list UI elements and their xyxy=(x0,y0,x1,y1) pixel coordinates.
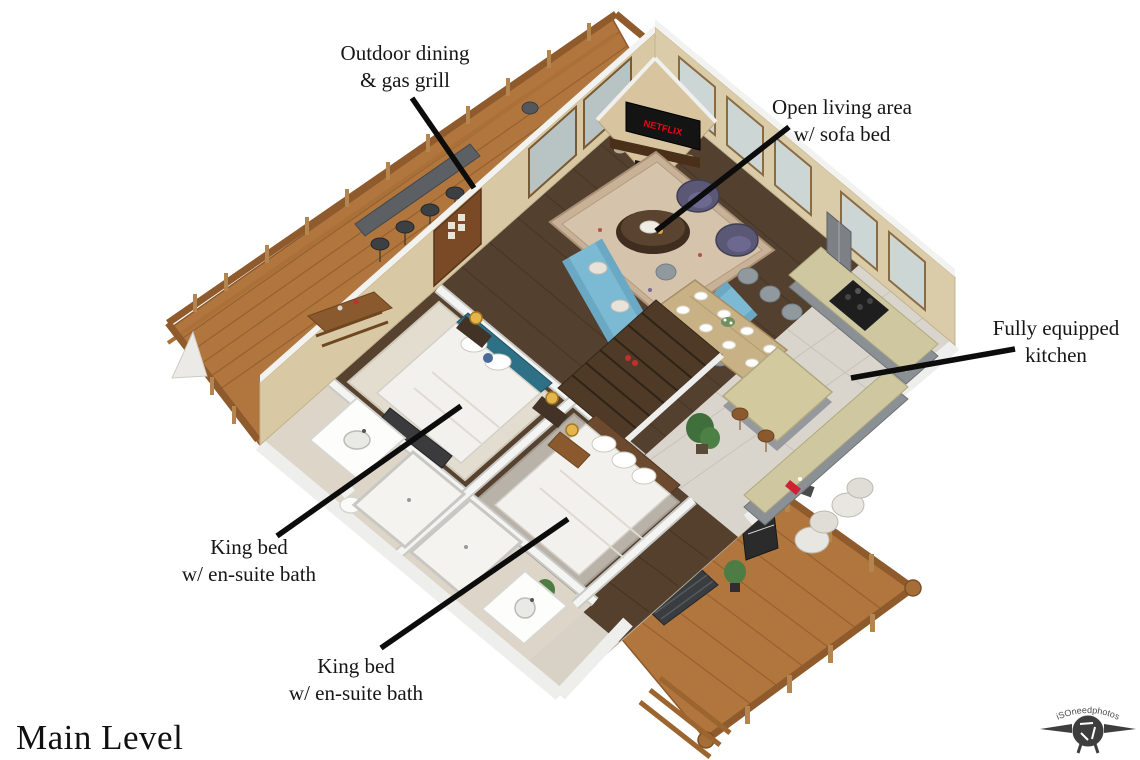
lamp xyxy=(546,392,558,404)
annotation-king-bed-2: King bed w/ en-suite bath xyxy=(246,653,466,707)
annotation-line: Fully equipped xyxy=(956,315,1140,342)
watermark-logo: iSOneedphotos xyxy=(1040,705,1136,753)
annotation-king-bed-1: King bed w/ en-suite bath xyxy=(139,534,359,588)
annotation-line: w/ en-suite bath xyxy=(246,680,466,707)
wing-left-icon xyxy=(1040,724,1072,733)
annotation-line: w/ en-suite bath xyxy=(139,561,359,588)
coffee-table xyxy=(616,210,690,254)
annotation-line: Outdoor dining xyxy=(295,40,515,67)
aperture-icon xyxy=(1074,717,1102,745)
annotation-line: King bed xyxy=(246,653,466,680)
annotation-line: King bed xyxy=(139,534,359,561)
annotation-line: w/ sofa bed xyxy=(732,121,952,148)
annotation-outdoor-dining: Outdoor dining & gas grill xyxy=(295,40,515,94)
floor-title: Main Level xyxy=(16,718,183,758)
centerpiece xyxy=(721,317,735,327)
stair-flowers xyxy=(625,355,631,361)
floor-plan-page: NETFLIX xyxy=(0,0,1140,760)
wing-right-icon xyxy=(1104,724,1136,733)
annotation-line: Open living area xyxy=(732,94,952,121)
porch-armchair-2 xyxy=(832,478,873,517)
floor-plan-illustration: NETFLIX xyxy=(0,0,1140,760)
sink-1 xyxy=(344,431,370,449)
annotation-line: & gas grill xyxy=(295,67,515,94)
annotation-kitchen: Fully equipped kitchen xyxy=(956,315,1140,369)
annotation-line: kitchen xyxy=(956,342,1140,369)
lamp xyxy=(470,312,482,324)
armchair-2 xyxy=(716,224,758,256)
lamp xyxy=(566,424,578,436)
annotation-living-area: Open living area w/ sofa bed xyxy=(732,94,952,148)
